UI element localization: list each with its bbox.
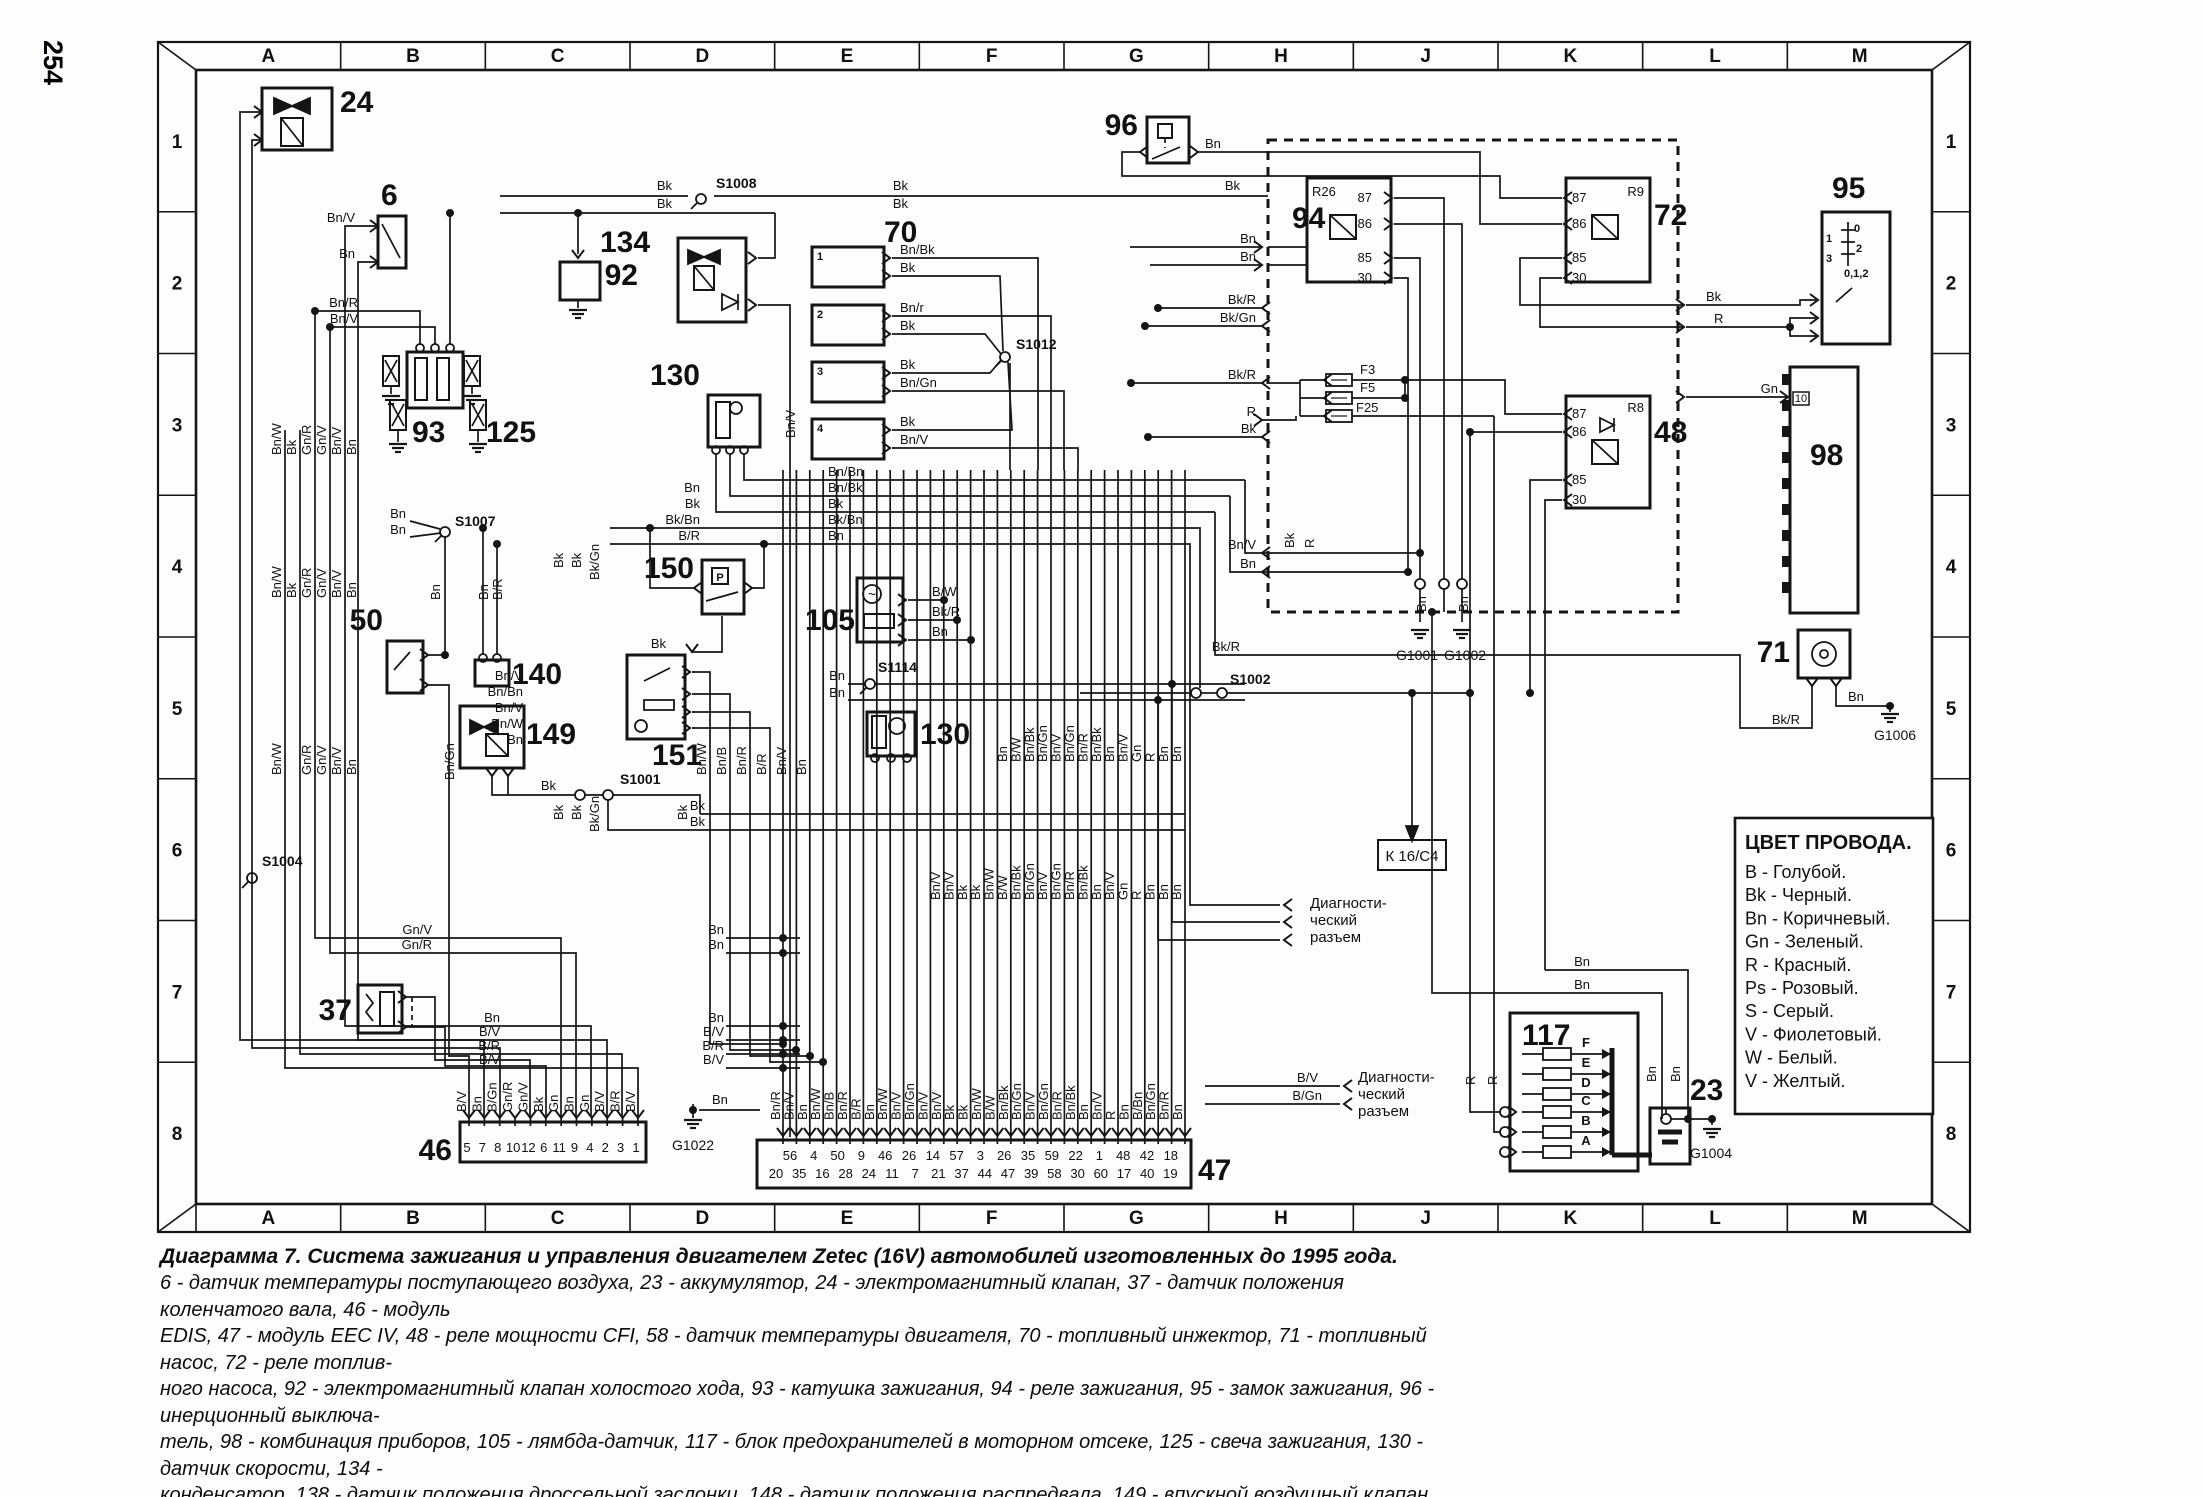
terminal-ring-icon [603,790,613,800]
fuse-letter: D [1581,1075,1590,1090]
terminal-ring-icon [440,527,450,537]
wire-label: Bk/Bn [828,512,863,527]
junction-dot [779,934,787,942]
wire-label: ческий [1358,1086,1405,1103]
wire-label: Bk/R [1228,292,1256,307]
terminal-ring-icon [1000,352,1010,362]
wire [1545,500,1562,970]
wire-label: Bk [690,798,706,813]
terminal-arrow-icon [1344,1080,1352,1092]
wire [1352,380,1562,414]
wire-label: 46 [419,1134,452,1167]
grid-col-label: K [1563,46,1577,67]
legend-entry: W - Белый. [1745,1048,1838,1068]
wire [1158,700,1280,940]
terminal-arrow-icon [1676,391,1684,403]
wire-label: разъем [1310,929,1361,946]
wire-label: Bn/B [714,747,729,775]
terminal-arrow-icon [1190,146,1198,158]
wire [394,652,410,670]
wire [1330,215,1356,239]
pin-number: 1 [1096,1148,1103,1163]
wire-label: R [1302,539,1317,548]
wire-label: B/R [608,1090,623,1112]
wire-label: Bk [690,814,706,829]
wire-label: 4 [817,423,824,435]
pin-number: 47 [1001,1166,1015,1181]
wire-label: Bk [541,778,557,793]
wire-label: G1001 [1396,647,1438,663]
wire [892,334,1001,354]
junction-dot [1408,689,1416,697]
wire-label: Bn/V [330,311,359,326]
junction-dot [1428,608,1436,616]
junction-dot [1466,428,1474,436]
wire-label: Bn [1414,596,1429,612]
junction-dot [1404,568,1412,576]
pin-number: 3 [977,1148,984,1163]
fuse-letter: F [1582,1035,1590,1050]
wire-label: Bk/Bn [665,512,700,527]
wire [1686,318,1816,327]
wire-label: 37 [319,994,352,1027]
connector-tooth [1782,452,1791,463]
wire [644,668,670,681]
wire-label: Bn/Bk [900,242,935,257]
wire [382,224,400,258]
grid-row-label: 4 [172,557,183,578]
wire-label: 85 [1358,250,1372,265]
wire-label: Gn [577,1095,592,1112]
wire [492,776,575,795]
pin-number: 7 [912,1166,919,1181]
junction-dot [1154,304,1162,312]
grid-row-label: 2 [172,274,183,295]
wire-label: Диагности- [1358,1069,1435,1086]
pin-number: 35 [1021,1148,1035,1163]
pin-number: 26 [997,1148,1011,1163]
wire-label: 125 [486,416,536,449]
legend-entry: R - Красный. [1745,955,1851,975]
fuse-letter: A [1581,1133,1591,1148]
wire-label: Bn [712,1092,728,1107]
pin-number: 21 [931,1166,945,1181]
wire-label: Bk [900,414,916,429]
pin-number: 5 [463,1140,470,1155]
wire-label: Bn/R [329,295,358,310]
wire-label: 0,1,2 [1844,268,1868,280]
pin-number: 22 [1068,1148,1082,1163]
terminal-ring-icon [696,194,706,204]
pin-number: 56 [783,1148,797,1163]
wire [1394,278,1408,572]
wire-label: Bk [657,196,673,211]
wire-label: B/Gn [485,1082,500,1112]
pin-number: 6 [540,1140,547,1155]
wire [706,592,738,601]
wire-label: B/V [592,1091,607,1112]
wire-label: Bk [1225,178,1241,193]
grid-col-label: H [1274,1208,1288,1229]
grid-row-label: 5 [1946,699,1957,720]
wire-label: Gn/V [314,425,329,455]
legend-entry: S - Серый. [1745,1001,1834,1021]
wire-label: 85 [1572,472,1586,487]
wire-label: F3 [1360,362,1375,377]
fuse-icon [1543,1068,1571,1080]
wire-label: Bn/V [327,210,356,225]
terminal-ring-icon [1457,579,1467,589]
wire-label: Bn [1240,231,1256,246]
grid-row-label: 4 [1946,557,1957,578]
wire [358,262,607,1116]
fuse-icon [1543,1146,1571,1158]
pin-number: 26 [902,1148,916,1163]
wire-label: B/W [932,584,957,599]
wire-label: B/V [454,1091,469,1112]
junction-dot [1401,394,1409,402]
wire-label: 95 [1832,172,1865,205]
grid-col-label: M [1852,46,1868,67]
wire-label: 50 [350,604,383,637]
terminal-arrow-icon [1284,934,1292,946]
symbol-path [274,98,292,114]
terminal-ring-icon [865,679,875,689]
junction-dot [311,307,319,315]
wire-label: Диагности- [1310,895,1387,912]
grid-row-label: 8 [172,1124,183,1145]
junction-dot [779,949,787,957]
wire-label: Bn/W [694,742,709,775]
wire-label: B/R [702,1038,724,1053]
junction-dot [806,1052,814,1060]
terminal-ring-icon [1820,650,1828,658]
wire-label: Bk [900,260,916,275]
wire-label: Bn [339,246,355,261]
grid-col-label: J [1420,46,1431,67]
wire [1932,1204,1970,1232]
wire-label: Bn [344,759,359,775]
junction-dot [1684,1115,1692,1123]
junction-dot [493,540,501,548]
grid-col-label: F [986,1208,998,1229]
wire-label: Bn [344,439,359,455]
terminal-arrow-icon [686,644,698,652]
pin-number: 60 [1094,1166,1108,1181]
wire-label: Bn [1668,1066,1683,1082]
pin-number: 42 [1140,1148,1154,1163]
wire-label: Gn/V [314,745,329,775]
pin-number: 3 [617,1140,624,1155]
junction-dot [779,1036,787,1044]
pin-number: 19 [1163,1166,1177,1181]
grid-row-label: 7 [172,982,183,1003]
junction-dot [1526,689,1534,697]
wire-label: Bk [900,318,916,333]
wire-label: Bn [1170,1104,1185,1120]
wire-label: Bn [1848,689,1864,704]
pin-number: 10 [506,1140,520,1155]
wire-label: 92 [605,259,638,292]
connector-tooth [1782,504,1791,515]
wire-label: 96 [1105,109,1138,142]
wire-label: F5 [1360,380,1375,395]
junction-dot [1416,549,1424,557]
wire-label: S1004 [262,853,303,869]
terminal-ring-icon [1812,642,1836,666]
wire-label: 130 [650,359,700,392]
legend-entry: Gn - Зеленый. [1745,932,1864,952]
wire-label: ческий [1310,912,1357,929]
wire [410,533,441,537]
wire-label: Bn/V [783,409,798,438]
caption-line: EDIS, 47 - модуль EEC IV, 48 - реле мощн… [160,1323,1460,1376]
terminal-ring-icon [1191,688,1201,698]
wire-label: Bk [1706,289,1722,304]
legend-entry: B - Голубой. [1745,862,1846,882]
pin-number: 4 [810,1148,817,1163]
junction-dot [1708,1115,1716,1123]
wire-label: 98 [1810,439,1843,472]
wire-label: 72 [1654,199,1687,232]
wire-label: 150 [644,552,694,585]
junction-dot [779,1064,787,1072]
wire-label: 71 [1757,636,1790,669]
junction-dot [779,1050,787,1058]
wire-label: Bn/V [900,432,929,447]
wire-label: 117 [1522,1019,1570,1052]
wire-label: R [1247,404,1256,419]
wire-label: B/Gn [1292,1088,1322,1103]
wire-label: Bn/W [269,422,284,455]
wire-label: Gn/R [500,1082,515,1112]
junction-dot [779,1022,787,1030]
pin-number: 57 [949,1148,963,1163]
wire-label: S1008 [716,175,757,191]
component-box [387,641,423,693]
grid-col-label: L [1709,1208,1721,1229]
wire-label: 130 [920,718,970,751]
wire-label: Bn/V [774,746,789,775]
wire-label: 94 [1292,202,1326,235]
grid-row-label: 2 [1946,274,1957,295]
wire-label: Bk [569,552,584,568]
wire [158,1204,196,1232]
pin-number: 12 [521,1140,535,1155]
wire-label: Bn [829,685,845,700]
wire-label: G1002 [1444,647,1486,663]
grid-col-label: L [1709,46,1721,67]
wire-label: Bn [684,480,700,495]
pin-number: 44 [978,1166,992,1181]
wire-label: Gn/V [314,568,329,598]
terminal-ring-icon [730,402,742,414]
legend-title: ЦВЕТ ПРОВОДА. [1745,832,1912,854]
wire-label: Bk/Gn [587,544,602,580]
connector-tooth [1782,530,1791,541]
wire [1394,258,1420,579]
wire-label: B/V [479,1052,500,1067]
caption-title: Диаграмма 7. Система зажигания и управле… [160,1244,1460,1270]
wire-label: Bk/R [1212,639,1240,654]
wire-label: разъем [1358,1103,1409,1120]
wire-label: Bk [569,804,584,820]
wire-label: Bn/R [734,746,749,775]
wire-label: 2 [1856,243,1862,255]
pin-number: 20 [769,1166,783,1181]
component-box [1158,124,1172,138]
connector-tooth [1782,582,1791,593]
wire-label: Bn [1644,1066,1659,1082]
wire-label: Bn/Gn [900,375,937,390]
wire-label: Bk [675,804,690,820]
symbol-path [366,994,373,1021]
symbol-path [688,250,704,264]
grid-row-label: 8 [1946,1124,1957,1145]
fuse-letter: B [1581,1113,1590,1128]
caption-line: 6 - датчик температуры поступающего возд… [160,1270,1460,1323]
wire-label: B/R [478,1038,500,1053]
terminal-arrow-icon [748,252,756,264]
wire-label: R8 [1627,400,1644,415]
splice-icon [242,882,248,888]
wire-label: Gn/R [299,425,314,455]
pin-number: 1 [632,1140,639,1155]
pin-number: 14 [926,1148,940,1163]
symbol-path [470,720,484,734]
legend-entry: V - Фиолетовый. [1745,1024,1882,1044]
wire-label: Bk [828,496,844,511]
wire [1540,278,1684,327]
wire-label: Gn/V [402,922,432,937]
pin-number: 9 [571,1140,578,1155]
wire-label: Bk [893,196,909,211]
terminal-arrow-icon [1262,320,1270,332]
wire-label: Gn/R [299,745,314,775]
wire-label: Bn/V [329,746,344,775]
wire-label: 47 [1198,1154,1231,1187]
grid-row-label: 5 [172,699,183,720]
wire-label: Bn [932,624,948,639]
symbol-path [292,98,310,114]
wire-label: 23 [1690,1074,1723,1107]
grid-col-label: J [1420,1208,1431,1229]
wire-label: Bk [284,439,299,455]
wire-label: Bn [1205,136,1221,151]
wire [281,118,303,146]
wire-label: Bn [1169,746,1184,762]
symbol-path [644,700,674,710]
wire-label: Bn [794,759,809,775]
wire-label: G1006 [1874,727,1916,743]
wire [694,266,714,290]
wire-label: 86 [1572,424,1586,439]
junction-dot [441,651,449,659]
wire-label: B/V [1297,1070,1318,1085]
junction-dot [1401,376,1409,384]
fuse-icon [1543,1106,1571,1118]
grid-col-label: D [695,46,709,67]
grid-col-label: G [1129,1208,1144,1229]
junction-dot [646,524,654,532]
grid-col-label: M [1852,1208,1868,1229]
wire-label: Bn/Bk [828,480,863,495]
wire-label: R [1463,1076,1478,1085]
grid-row-label: 1 [1946,132,1957,153]
wire-label: S1012 [1016,336,1057,352]
pin-number: 28 [838,1166,852,1181]
pin-number: 37 [954,1166,968,1181]
terminal-arrow-icon [1262,431,1270,443]
wire-label: 10 [1795,393,1807,405]
pin-number: 58 [1047,1166,1061,1181]
junction-dot [760,540,768,548]
wire-label: Bk [685,496,701,511]
wire [892,448,1078,470]
wire-label: Bn [1574,954,1590,969]
grid-col-label: C [551,46,565,67]
junction-dot [1786,323,1794,331]
wire-label: 48 [1654,416,1687,449]
wire-label: Bk/Gn [587,796,602,832]
wire-label: Bk [900,357,916,372]
wire-label: Bk [531,1096,546,1112]
grid-col-label: E [841,1208,854,1229]
fuse-icon [1543,1088,1571,1100]
wire-label: Bk [657,178,673,193]
wire-label: Bn [1169,884,1184,900]
connector-tooth [1782,478,1791,489]
wire-label: Bn [562,1096,577,1112]
terminal-arrow-icon [1262,302,1270,314]
caption-line: конденсатор, 138 - датчик положения дрос… [160,1482,1460,1497]
wire-label: Bn/Gn [442,743,457,780]
terminal-ring-icon [1439,579,1449,589]
wire-label: B/V [703,1024,724,1039]
wire-label: 3 [1826,253,1832,265]
wire-label: 86 [1358,216,1372,231]
wire-label: 149 [526,718,576,751]
grid-row-label: 3 [172,415,183,436]
junction-dot [1886,702,1894,710]
wire-label: Gn/R [299,568,314,598]
wire-label: 87 [1572,190,1586,205]
wire-label: 85 [1572,250,1586,265]
wire [730,454,1230,496]
junction-dot [574,209,582,217]
wire-label: B/R [490,578,505,600]
junction-dot [1466,689,1474,697]
pin-number: 18 [1164,1148,1178,1163]
wire-label: Bk [893,178,909,193]
wire-label: Bn [708,937,724,952]
fuse-icon [1543,1126,1571,1138]
wire-label: S1001 [620,771,661,787]
wire-label: 6 [381,179,398,212]
wire [1262,416,1296,420]
wire-label: Bn [428,584,443,600]
wire-label: К 16/С4 [1386,848,1439,865]
wire-label: 105 [805,604,855,637]
junction-dot [689,1106,697,1114]
wire-label: Bn/Bn [828,464,863,479]
wire-label: 30 [1572,492,1586,507]
caption-line: ного насоса, 92 - электромагнитный клапа… [160,1376,1460,1429]
wire-label: S1002 [1230,671,1271,687]
wire [1152,147,1180,159]
wire-label: Bk [551,552,566,568]
component-box [716,402,730,438]
